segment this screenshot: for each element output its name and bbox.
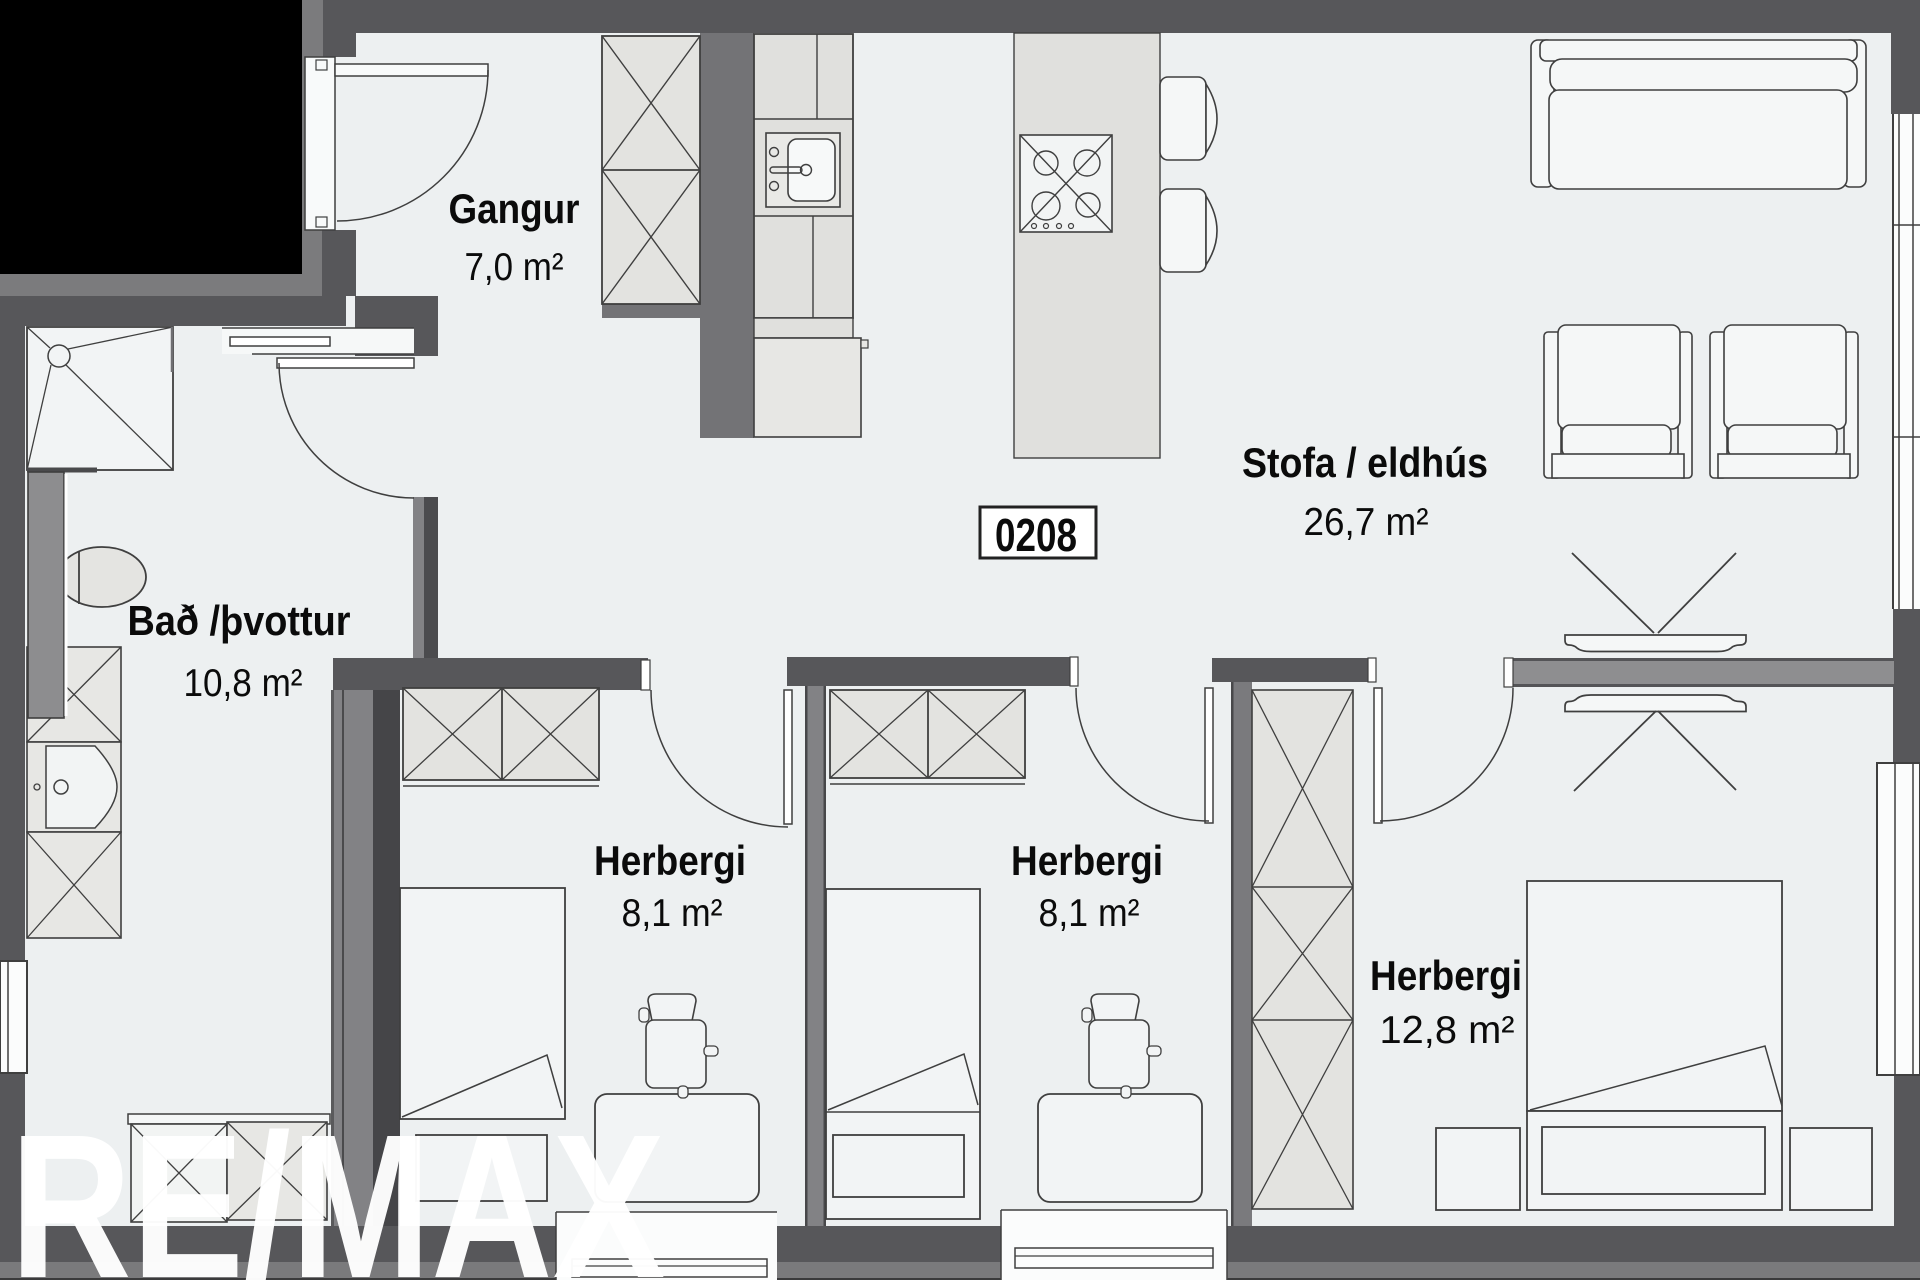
svg-text:Herbergi: Herbergi (1011, 837, 1163, 884)
svg-text:Bað /þvottur: Bað /þvottur (128, 597, 351, 644)
svg-text:Herbergi: Herbergi (1370, 952, 1522, 999)
svg-text:Gangur: Gangur (449, 185, 580, 232)
svg-text:0208: 0208 (995, 509, 1077, 561)
svg-text:12,8 m²: 12,8 m² (1380, 1009, 1515, 1052)
svg-text:8,1 m²: 8,1 m² (1039, 892, 1140, 935)
svg-text:Stofa / eldhús: Stofa / eldhús (1242, 439, 1488, 486)
svg-text:10,8 m²: 10,8 m² (184, 662, 303, 705)
svg-text:26,7 m²: 26,7 m² (1304, 501, 1429, 544)
svg-text:7,0 m²: 7,0 m² (465, 246, 564, 289)
svg-text:8,1 m²: 8,1 m² (622, 892, 723, 935)
svg-text:RE/MAX: RE/MAX (10, 1092, 665, 1280)
svg-text:Herbergi: Herbergi (594, 837, 746, 884)
